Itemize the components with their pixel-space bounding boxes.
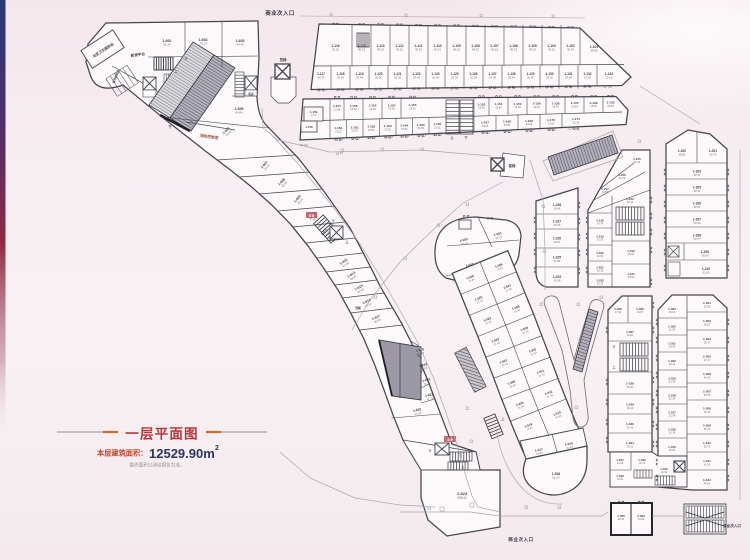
svg-text:下: 下 [184,56,187,61]
svg-text:51.60: 51.60 [703,270,710,274]
svg-text:26.75: 26.75 [318,75,325,79]
svg-text:40.51: 40.51 [548,48,555,52]
svg-text:40.45: 40.45 [567,48,574,52]
svg-text:23.52: 23.52 [401,127,408,131]
svg-text:23.52: 23.52 [434,126,441,130]
svg-text:23.52: 23.52 [548,121,555,125]
svg-text:24.96: 24.96 [554,206,561,210]
svg-text:20.04: 20.04 [527,75,534,79]
svg-text:40.51: 40.51 [377,48,384,52]
svg-text:20.33: 20.33 [597,239,604,242]
svg-text:21.34: 21.34 [669,328,676,332]
svg-text:19.54: 19.54 [533,105,540,109]
svg-text:本层建筑面积：: 本层建筑面积： [97,449,147,458]
svg-text:52.11: 52.11 [694,189,701,193]
svg-text:商业次入口: 商业次入口 [265,9,295,17]
svg-text:36.12: 36.12 [627,425,634,429]
svg-text:40.51: 40.51 [472,48,479,52]
svg-text:1-122: 1-122 [412,72,420,76]
svg-text:1-129: 1-129 [526,72,534,76]
svg-text:1-210: 1-210 [702,267,710,271]
svg-text:25.33: 25.33 [597,270,604,273]
svg-text:53.20: 53.20 [332,48,339,52]
svg-text:12529.90m: 12529.90m [149,446,215,461]
svg-text:19.60: 19.60 [607,104,614,108]
svg-text:21.34: 21.34 [669,431,676,435]
svg-text:81.36: 81.36 [163,43,171,47]
svg-text:设备: 设备 [308,213,314,218]
svg-text:36.12: 36.12 [627,444,634,448]
svg-text:1-202: 1-202 [678,149,686,153]
svg-text:商业次入口: 商业次入口 [723,523,741,528]
svg-text:1-205: 1-205 [693,186,701,190]
svg-text:货梯: 货梯 [279,57,287,62]
svg-text:20.32: 20.32 [546,75,553,79]
svg-text:上: 上 [174,68,177,73]
svg-text:客梯: 客梯 [508,163,516,168]
svg-text:38.54: 38.54 [628,275,635,279]
svg-text:33.53: 33.53 [602,190,609,194]
svg-text:20.04: 20.04 [413,75,420,79]
svg-text:36.12: 36.12 [627,406,634,410]
svg-text:41.53: 41.53 [704,462,711,466]
svg-text:61.25: 61.25 [553,476,560,480]
svg-text:21.34: 21.34 [669,380,676,384]
svg-text:20.04: 20.04 [451,75,458,79]
svg-text:23.52: 23.52 [352,129,359,133]
svg-text:45.67: 45.67 [554,240,561,244]
svg-text:40.15: 40.15 [704,375,711,379]
svg-text:24.57: 24.57 [637,310,644,314]
svg-text:1-119: 1-119 [356,72,364,76]
svg-text:15.54: 15.54 [478,106,485,110]
svg-text:22.11: 22.11 [669,362,676,366]
svg-text:49.64: 49.64 [704,481,711,485]
svg-text:21.30: 21.30 [573,120,580,124]
svg-text:29.60: 29.60 [627,333,634,337]
svg-text:1-125: 1-125 [450,72,458,76]
svg-text:上: 上 [345,239,348,244]
svg-text:1-228: 1-228 [553,203,561,207]
svg-text:84.84: 84.84 [235,111,243,115]
svg-text:上: 上 [612,364,615,369]
svg-text:35.70: 35.70 [704,340,711,344]
svg-text:38.90: 38.90 [591,49,598,53]
svg-text:25.65: 25.65 [606,75,613,79]
svg-text:19.53: 19.53 [369,107,376,111]
svg-text:40.51: 40.51 [396,48,403,52]
svg-text:22.30: 22.30 [634,160,641,164]
svg-text:40.51: 40.51 [434,48,441,52]
svg-text:19.53: 19.53 [350,107,357,111]
svg-text:19.53: 19.53 [388,107,395,111]
svg-text:36.51: 36.51 [628,252,635,256]
svg-text:23.02: 23.02 [300,143,308,147]
svg-text:20.93: 20.93 [597,255,604,258]
svg-text:17.32: 17.32 [615,310,622,314]
svg-text:34.79: 34.79 [619,176,626,180]
svg-text:20.04: 20.04 [489,75,496,79]
svg-text:1-223: 1-223 [553,275,561,279]
svg-text:20.04: 20.04 [432,75,439,79]
svg-text:一层平面图: 一层平面图 [125,427,199,442]
svg-text:19.54: 19.54 [514,105,521,109]
svg-text:2: 2 [215,445,219,452]
svg-text:33.91: 33.91 [627,385,634,389]
svg-text:25.29: 25.29 [554,223,561,227]
svg-text:1-201: 1-201 [709,149,717,153]
svg-text:35.76: 35.76 [704,427,711,431]
svg-text:1-120: 1-120 [374,72,382,76]
svg-text:13.6: 13.6 [311,114,316,117]
svg-text:20.04: 20.04 [375,75,382,79]
svg-text:79.14: 79.14 [199,42,207,46]
svg-text:20.90: 20.90 [618,517,625,521]
svg-text:1-118: 1-118 [337,72,345,76]
svg-text:56.73: 56.73 [710,152,717,156]
svg-text:43.08: 43.08 [554,278,561,282]
svg-text:23.52: 23.52 [504,123,511,127]
svg-text:1-208: 1-208 [693,234,701,238]
svg-text:20.04: 20.04 [337,75,344,79]
svg-text:1-227: 1-227 [553,220,561,224]
svg-text:1-203: 1-203 [693,170,701,174]
svg-text:35.76: 35.76 [704,393,711,397]
svg-text:19.74: 19.74 [597,223,604,226]
svg-text:21.34: 21.34 [669,397,676,401]
svg-text:34.14: 34.14 [627,200,634,204]
svg-text:12.48: 12.48 [334,107,341,111]
svg-text:25.33: 25.33 [597,283,604,286]
svg-text:1-206: 1-206 [693,202,701,206]
svg-text:37.37: 37.37 [704,358,711,362]
svg-text:40.51: 40.51 [529,48,536,52]
svg-text:52.11: 52.11 [694,173,701,177]
svg-text:35.76: 35.76 [704,444,711,448]
svg-text:23.52: 23.52 [385,127,392,131]
svg-text:1-225: 1-225 [553,256,561,260]
svg-text:1-133: 1-133 [605,72,613,76]
svg-text:上: 上 [501,416,504,421]
svg-text:94.45: 94.45 [236,43,244,47]
svg-text:1-132: 1-132 [583,72,591,76]
svg-text:19.54: 19.54 [571,104,578,108]
svg-text:19.54: 19.54 [495,105,502,109]
svg-text:40.51: 40.51 [453,48,460,52]
svg-text:23.52: 23.52 [482,124,489,128]
svg-text:39.53: 39.53 [704,322,711,326]
svg-text:25.35: 25.35 [704,304,711,308]
svg-text:最终面积以测绘报告为准。: 最终面积以测绘报告为准。 [129,462,184,469]
svg-text:209.41: 209.41 [457,496,467,500]
svg-text:19.60: 19.60 [590,104,597,108]
svg-text:1-128: 1-128 [507,72,515,76]
svg-text:1-226: 1-226 [553,237,561,241]
svg-text:40.51: 40.51 [510,48,517,52]
svg-text:21.34: 21.34 [669,414,676,418]
svg-text:37.96: 37.96 [554,259,561,263]
svg-text:20.04: 20.04 [470,75,477,79]
svg-text:14.16: 14.16 [617,462,624,465]
svg-text:19.32: 19.32 [584,75,591,79]
svg-text:1-127: 1-127 [488,72,496,76]
svg-text:19.54: 19.54 [552,105,559,109]
svg-text:1-207: 1-207 [693,218,701,222]
svg-text:1-158: 1-158 [305,125,313,129]
svg-text:40.51: 40.51 [415,48,422,52]
svg-text:21.32: 21.32 [661,471,668,474]
svg-text:23.52: 23.52 [526,122,533,126]
svg-text:33.04: 33.04 [669,310,676,314]
svg-text:39.69: 39.69 [702,253,709,257]
svg-text:23.52: 23.52 [418,126,425,130]
svg-text:23.52: 23.52 [335,129,342,133]
svg-text:40.51: 40.51 [358,48,365,52]
svg-text:56.77: 56.77 [694,237,701,241]
svg-text:33.06: 33.06 [638,517,645,521]
svg-text:下: 下 [331,218,334,223]
svg-text:20.04: 20.04 [356,75,363,79]
svg-text:下: 下 [612,344,615,349]
svg-text:13.80: 13.80 [617,478,624,481]
svg-text:19.73: 19.73 [639,462,646,465]
svg-text:1-117: 1-117 [317,72,325,76]
svg-text:22.87: 22.87 [669,448,676,452]
svg-text:商业次入口: 商业次入口 [508,536,533,543]
svg-text:20.04: 20.04 [565,75,572,79]
svg-text:20.04: 20.04 [394,75,401,79]
svg-text:1-131: 1-131 [564,72,572,76]
svg-text:下: 下 [428,448,431,453]
svg-text:1-130: 1-130 [545,72,553,76]
svg-text:1-121: 1-121 [393,72,401,76]
svg-text:52.11: 52.11 [694,205,701,209]
svg-text:35.70: 35.70 [704,410,711,414]
svg-text:40.51: 40.51 [491,48,498,52]
svg-text:1-123: 1-123 [431,72,439,76]
svg-text:58.81: 58.81 [679,152,686,156]
svg-text:23.52: 23.52 [368,128,375,132]
svg-text:23.41: 23.41 [409,106,416,110]
svg-text:男厕: 男厕 [355,306,361,310]
svg-text:19.41: 19.41 [669,345,676,349]
svg-text:设备: 设备 [447,437,453,442]
svg-text:1-126: 1-126 [469,72,477,76]
svg-text:20.04: 20.04 [508,75,515,79]
svg-text:1-209: 1-209 [701,250,709,254]
svg-text:机房: 机房 [247,92,254,96]
svg-text:56.36: 56.36 [694,221,701,225]
